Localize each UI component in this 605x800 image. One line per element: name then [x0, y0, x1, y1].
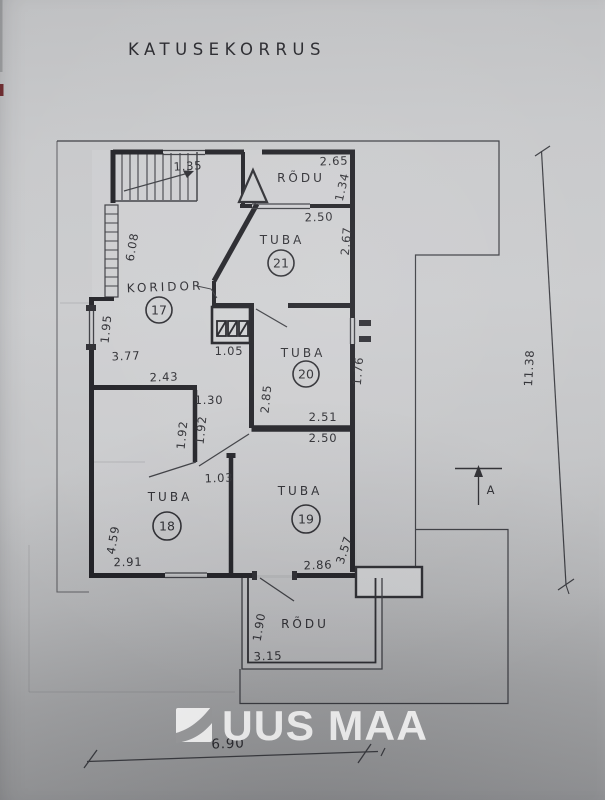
- dim-1-92-right: 1.92: [193, 415, 210, 445]
- room-fills: [92, 145, 499, 669]
- dim-2-50-mid: 2.50: [309, 431, 338, 445]
- floorplan-drawing: A KATUSEKORRUS 1.35 RÕDU 2.65 1.34 2.50 …: [0, 0, 605, 800]
- dim-2-85: 2.85: [258, 384, 275, 414]
- corner-mark: [0, 84, 4, 96]
- window-right: [351, 318, 355, 344]
- dim-1-95: 1.95: [98, 314, 115, 344]
- logo-icon: [176, 707, 212, 743]
- dim-3-15: 3.15: [253, 649, 282, 664]
- room-label-tuba18: TUBA: [147, 490, 193, 504]
- dim-2-91: 2.91: [113, 555, 142, 570]
- dim-1-30: 1.30: [195, 393, 224, 407]
- dim-2-43: 2.43: [149, 370, 178, 385]
- dim-1-03: 1.03: [204, 471, 233, 486]
- dim-1-76: 1.76: [350, 356, 366, 386]
- dim-2-65: 2.65: [319, 154, 348, 169]
- window-left: [90, 311, 94, 346]
- dim-1-35: 1.35: [173, 158, 203, 173]
- edge-shadow: [0, 0, 3, 72]
- dim-line-11-38: [542, 151, 567, 585]
- room-number-17: 17: [151, 303, 167, 318]
- logo-wordmark: UUS MAA: [222, 702, 428, 749]
- room-label-rodu-bottom: RÕDU: [281, 616, 329, 631]
- photo-artifacts: [0, 0, 4, 96]
- room-number-19: 19: [298, 512, 314, 527]
- room-label-koridor: KORIDOR: [126, 279, 203, 296]
- section-marker-label: A: [487, 483, 496, 497]
- room-label-tuba20: TUBA: [280, 346, 326, 360]
- room-label-tuba19: TUBA: [277, 484, 323, 498]
- dim-2-50-top: 2.50: [304, 210, 333, 225]
- room-label-tuba21: TUBA: [259, 233, 305, 247]
- scanned-floorplan-page: A KATUSEKORRUS 1.35 RÕDU 2.65 1.34 2.50 …: [0, 0, 605, 800]
- roof-block: [356, 567, 422, 597]
- dim-1-92-left: 1.92: [174, 420, 191, 450]
- dim-11-38: 11.38: [521, 349, 537, 387]
- page-title: KATUSEKORRUS: [128, 40, 326, 59]
- dim-1-05: 1.05: [215, 344, 244, 358]
- dim-2-86: 2.86: [303, 558, 332, 573]
- chimney-shaft: [212, 307, 250, 343]
- dim-2-67: 2.67: [338, 226, 354, 256]
- dim-3-77: 3.77: [111, 349, 140, 364]
- section-marker: A: [455, 465, 502, 505]
- wall-cap: [227, 453, 236, 458]
- dim-2-51: 2.51: [309, 410, 338, 424]
- dim-line-6-90: [87, 752, 378, 762]
- room-number-21: 21: [273, 256, 289, 271]
- room-number-20: 20: [298, 367, 314, 382]
- room-number-18: 18: [159, 519, 175, 534]
- section-arrow-head: [474, 465, 483, 477]
- room-label-rodu-top: RÕDU: [277, 170, 325, 185]
